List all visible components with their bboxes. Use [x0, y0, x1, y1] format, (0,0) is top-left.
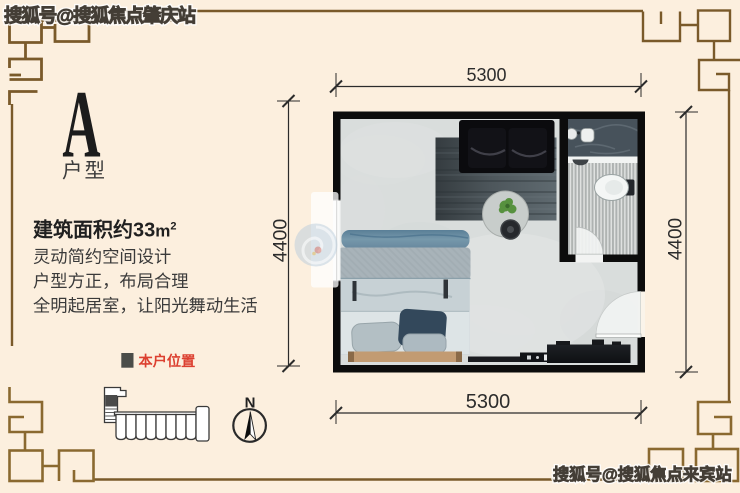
svg-text:5300: 5300: [466, 65, 506, 85]
svg-text:搜狐号@搜狐焦点肇庆站: 搜狐号@搜狐焦点肇庆站: [4, 5, 197, 26]
svg-text:N: N: [245, 395, 256, 412]
svg-text:4400: 4400: [270, 219, 292, 263]
svg-text:搜狐号@搜狐焦点来宾站: 搜狐号@搜狐焦点来宾站: [553, 465, 732, 484]
svg-text:灵动简约空间设计: 灵动简约空间设计: [33, 247, 171, 267]
svg-text:4400: 4400: [666, 218, 687, 260]
svg-text:户型方正，布局合理: 户型方正，布局合理: [33, 271, 189, 291]
svg-text:本户位置: 本户位置: [139, 353, 196, 370]
svg-text:5300: 5300: [466, 391, 511, 413]
svg-text:全明起居室，让阳光舞动生活: 全明起居室，让阳光舞动生活: [33, 296, 258, 316]
svg-text:建筑面积约33m2: 建筑面积约33m2: [33, 218, 177, 242]
svg-text:户型: 户型: [62, 160, 107, 183]
